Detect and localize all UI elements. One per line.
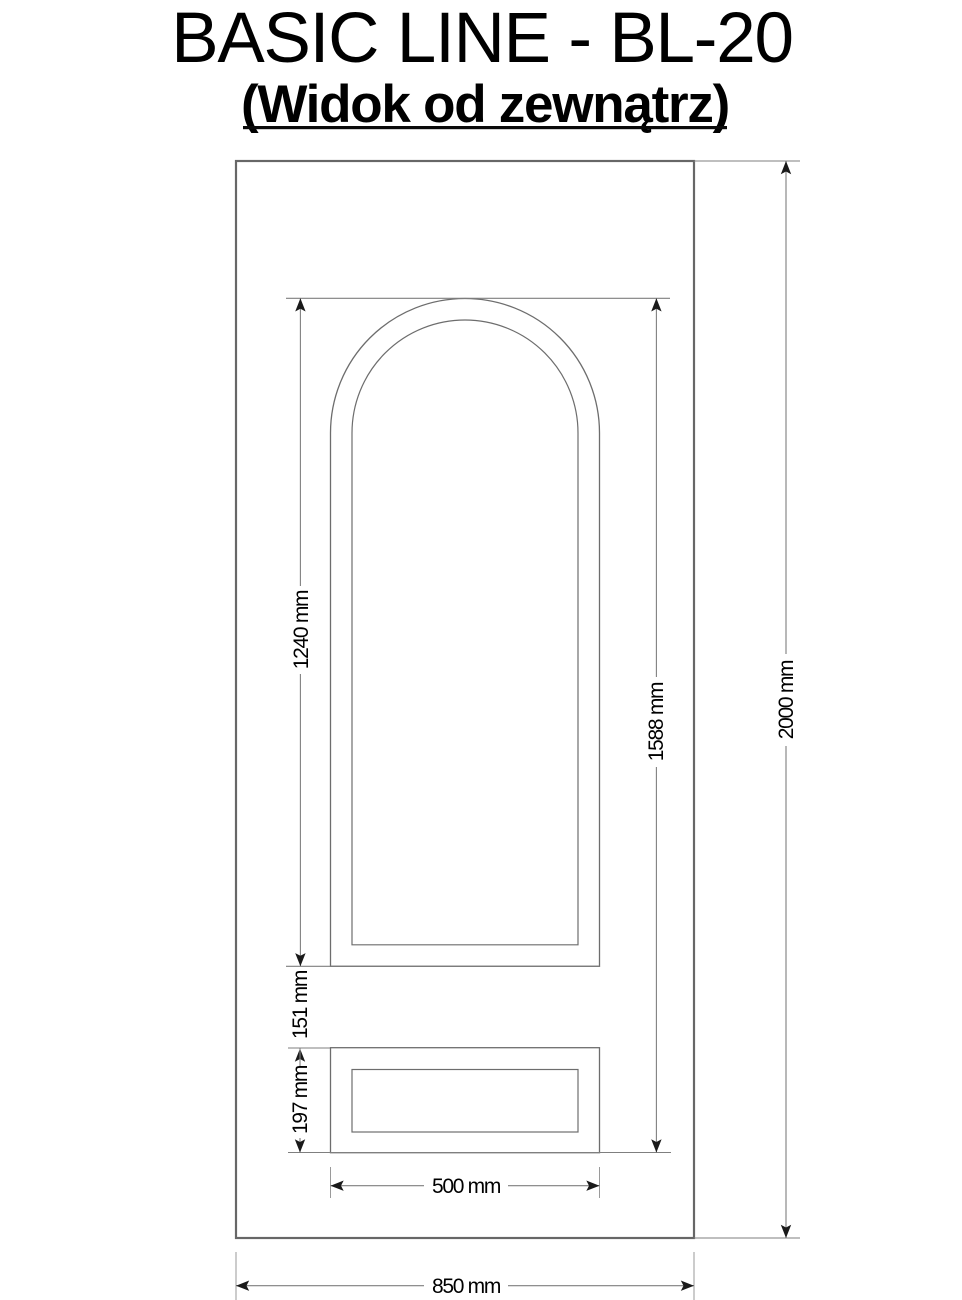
- svg-text:197 mm: 197 mm: [289, 1065, 312, 1134]
- svg-text:BASIC LINE - BL-20: BASIC LINE - BL-20: [171, 0, 793, 78]
- svg-text:2000 mm: 2000 mm: [775, 660, 798, 739]
- svg-text:(Widok od zewnątrz): (Widok od zewnątrz): [241, 75, 729, 134]
- svg-text:151 mm: 151 mm: [289, 970, 312, 1039]
- svg-text:500 mm: 500 mm: [432, 1175, 501, 1198]
- svg-text:850 mm: 850 mm: [432, 1275, 501, 1298]
- svg-text:1588 mm: 1588 mm: [645, 682, 668, 761]
- svg-text:1240 mm: 1240 mm: [290, 590, 313, 669]
